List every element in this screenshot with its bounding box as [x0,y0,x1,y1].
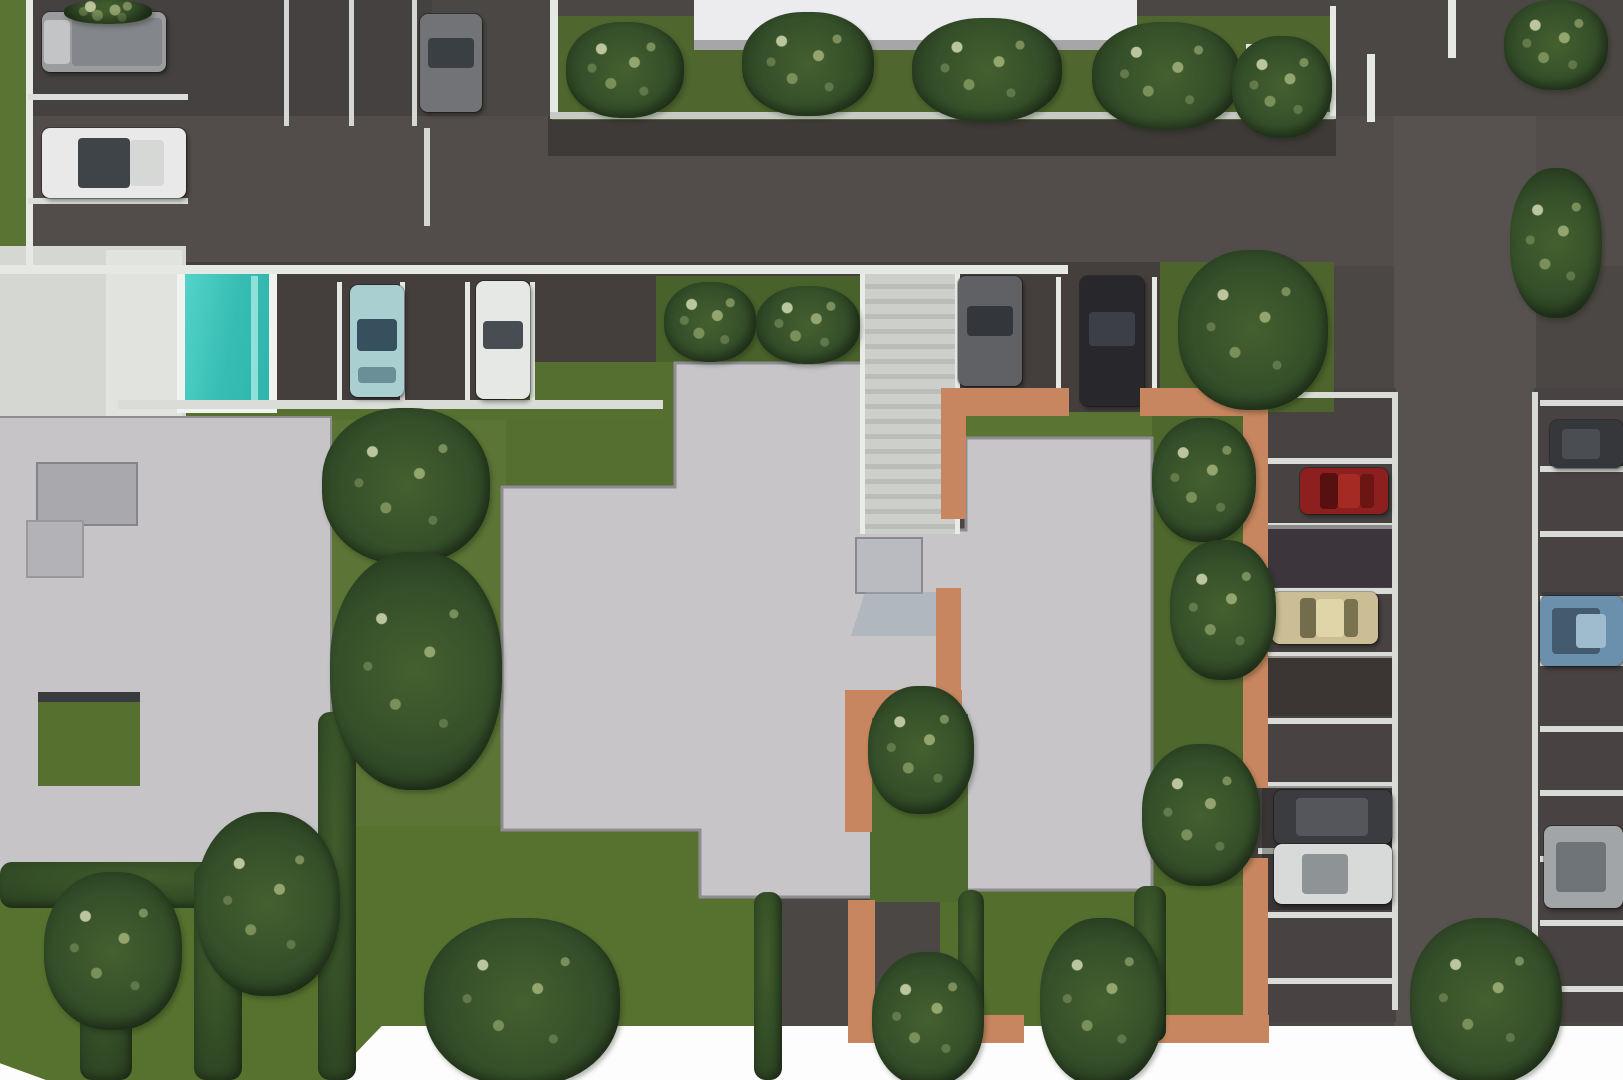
tree-bottom-2 [196,812,340,996]
tree-courtyard-1 [868,686,974,814]
tree-bottom-5 [1410,918,1562,1080]
bush-top-right-corner [1504,0,1608,90]
tree-unit-side-2 [1170,540,1276,680]
bush-planter-2 [756,286,860,364]
tree-unit-side-3 [1142,744,1260,886]
tree-bottom-1 [44,872,182,1030]
site-plan-stage [0,0,1623,1080]
tree-gap-1 [322,408,490,564]
tree-hedgerow-5 [1232,36,1332,138]
tree-bottom-4 [1040,918,1164,1080]
tree-unit-side-1 [1152,418,1256,542]
tree-gap-2 [330,552,502,790]
bush-top-left [64,0,152,24]
tree-hedgerow-2 [742,12,874,116]
tree-hedgerow-1 [566,22,684,118]
hedge-col-e [754,892,782,1080]
tree-bottom-3 [424,918,620,1080]
tree-ne-of-unit [1178,250,1328,410]
tree-hedgerow-4 [1092,22,1240,130]
tree-top-right [1510,168,1602,318]
tree-hedgerow-3 [912,18,1062,122]
tree-courtyard-2 [872,952,984,1080]
vegetation [0,0,1623,1080]
bush-planter-1 [664,282,756,362]
